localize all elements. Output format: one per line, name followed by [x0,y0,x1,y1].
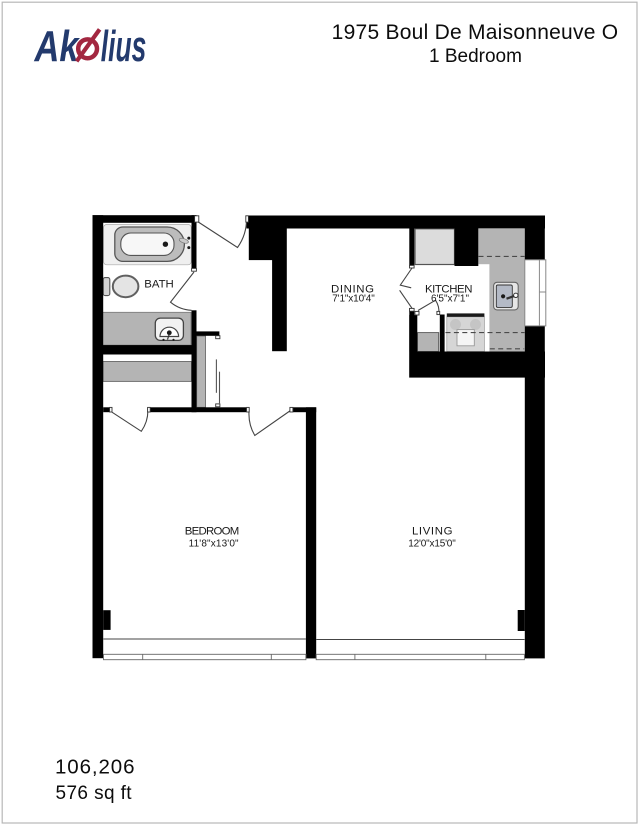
svg-text:7'1"x10'4": 7'1"x10'4" [332,293,375,304]
svg-text:lius: lius [101,22,147,71]
svg-text:1 Bedroom: 1 Bedroom [429,46,522,67]
svg-text:11'8"x13'0": 11'8"x13'0" [189,539,239,550]
svg-text:12'0"x15'0": 12'0"x15'0" [408,539,456,550]
svg-text:106,206: 106,206 [55,756,135,779]
svg-text:576 sq ft: 576 sq ft [56,783,133,804]
svg-text:6'5"x7'1": 6'5"x7'1" [431,293,469,304]
svg-text:LIVING: LIVING [412,526,453,538]
svg-text:BATH: BATH [144,279,174,291]
svg-text:1975 Boul De Maisonneuve O: 1975 Boul De Maisonneuve O [332,21,619,44]
svg-text:BEDROOM: BEDROOM [185,526,240,538]
svg-text:Ak: Ak [34,22,81,71]
